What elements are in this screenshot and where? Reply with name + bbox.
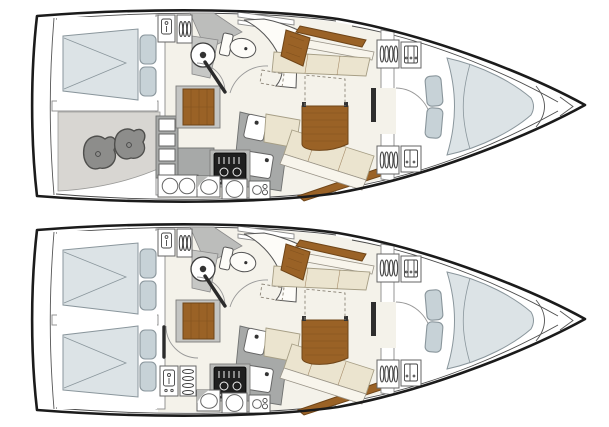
companionway <box>176 86 220 128</box>
aft-cabin <box>57 17 157 102</box>
aft-cabin-starboard <box>57 231 157 316</box>
layout-three-cabin <box>0 214 609 427</box>
aft-cabin-port <box>57 324 157 409</box>
companionway <box>176 300 220 342</box>
layout-two-cabin <box>0 0 609 213</box>
yacht-layout-sheet <box>0 0 609 427</box>
